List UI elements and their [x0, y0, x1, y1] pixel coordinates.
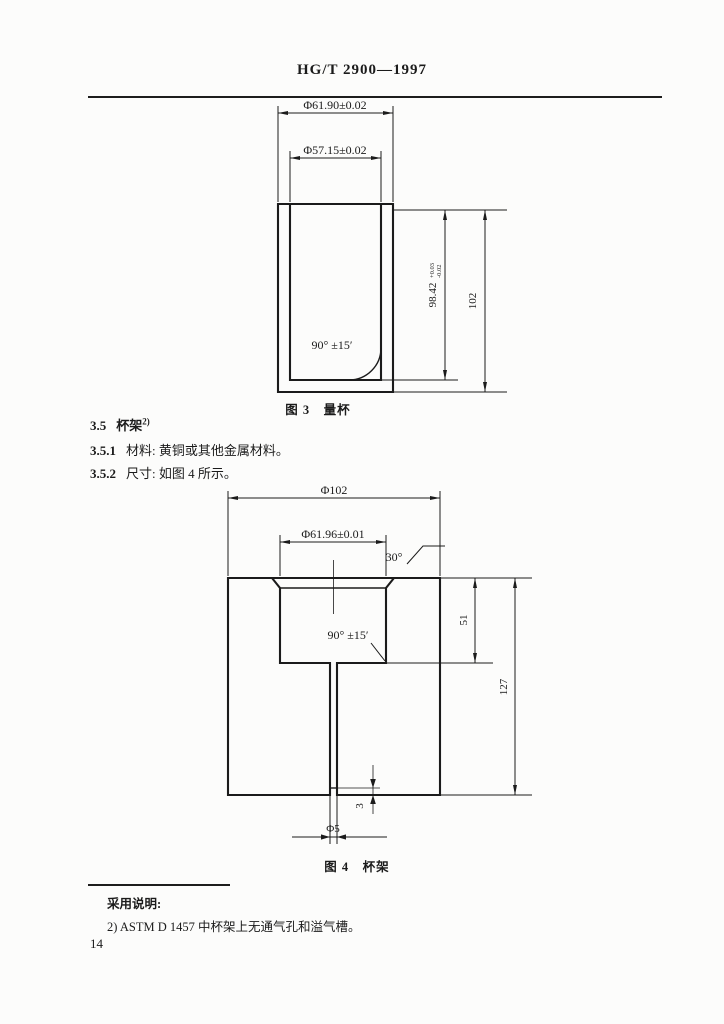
standard-number-header: HG/T 2900—1997	[0, 62, 724, 79]
fig3-extension-lines	[381, 210, 507, 392]
fig3-height-dimension: 102	[467, 210, 485, 392]
fig4-cavity-angle-annotation: 90° ±15′	[327, 628, 385, 661]
fig4-cavity-depth-label: 51	[458, 615, 470, 626]
fig4-chamfer-angle-label: 30°	[386, 550, 403, 564]
fig4-bore-diameter-dimension: Φ61.96±0.01	[280, 527, 386, 576]
fig4-base-gap-arrow-bottom	[370, 795, 376, 804]
fig3-depth-label: 98.42	[427, 283, 439, 308]
fig4-outer-diameter-label: Φ102	[321, 483, 348, 497]
footnote-rule	[88, 884, 230, 886]
figure3-caption: 图 3 量杯	[258, 399, 378, 418]
fig3-angle-arc	[349, 348, 381, 380]
fig3-inner-diameter-dimension: Φ57.15±0.02	[290, 143, 381, 202]
holder-block-left-section	[228, 578, 330, 795]
fig4-hole-diameter-label: Φ5	[326, 823, 340, 835]
fig4-cavity-depth-dimension: 51	[458, 578, 475, 663]
figure4-cup-holder-drawing: Φ102 Φ61.96±0.01 30° 90° ±15′ 51 127	[210, 484, 555, 869]
section-3-5-2-text: 尺寸: 如图 4 所示。	[126, 466, 237, 481]
fig4-extension-lines	[386, 578, 532, 795]
section-3-5-footnote-ref: 2)	[142, 417, 150, 427]
fig4-cavity-angle-label: 90° ±15′	[327, 628, 368, 642]
fig3-angle-label: 90° ±15′	[311, 338, 352, 352]
fig4-chamfer-leader	[407, 546, 445, 564]
fig4-base-gap-label: 3	[354, 803, 366, 809]
section-3-5-1-line: 3.5.1材料: 黄铜或其他金属材料。	[90, 440, 289, 459]
fig3-depth-tolerance-lower: -0.02	[436, 264, 443, 278]
section-3-5-heading: 3.5杯架2)	[90, 415, 150, 434]
fig3-inner-diameter-label: Φ57.15±0.02	[303, 143, 366, 157]
cup-section-hatched	[278, 204, 393, 392]
fig3-bottom-angle-annotation: 90° ±15′	[311, 338, 381, 380]
fig4-base-gap-arrow-top	[370, 779, 376, 788]
fig4-hole-arrow-left	[321, 834, 330, 839]
fig4-chamfer-angle-annotation: 30°	[386, 546, 445, 564]
section-3-5-2-line: 3.5.2尺寸: 如图 4 所示。	[90, 463, 237, 482]
fig4-height-dimension: 127	[498, 578, 515, 795]
section-3-5-title: 杯架	[116, 418, 142, 433]
fig4-base-gap-dimension: 3	[337, 765, 380, 814]
page-number: 14	[90, 936, 103, 952]
section-3-5-1-number: 3.5.1	[90, 443, 116, 458]
footnote-heading: 采用说明:	[107, 893, 161, 912]
section-3-5-number: 3.5	[90, 418, 106, 433]
fig3-depth-dimension: 98.42 +0.03 -0.02	[427, 210, 445, 380]
section-3-5-2-number: 3.5.2	[90, 466, 116, 481]
figure4-caption: 图 4 杯架	[297, 856, 417, 875]
section-3-5-1-text: 材料: 黄铜或其他金属材料。	[126, 443, 289, 458]
holder-block-right-section	[337, 578, 440, 795]
scanned-standard-page: { "header": { "title": "HG/T 2900—1997" …	[0, 0, 724, 1024]
fig3-outer-diameter-label: Φ61.90±0.02	[303, 98, 366, 112]
fig4-height-label: 127	[498, 678, 510, 695]
footnote-item: 2) ASTM D 1457 中杯架上无通气孔和溢气槽。	[107, 916, 360, 935]
fig4-bore-diameter-label: Φ61.96±0.01	[301, 527, 364, 541]
fig3-depth-tolerance-upper: +0.03	[429, 263, 436, 278]
fig4-hole-arrow-right	[337, 834, 346, 839]
fig4-cavity-angle-leader	[371, 643, 385, 661]
fig3-height-label: 102	[467, 293, 479, 310]
figure3-measuring-cup-drawing: Φ61.90±0.02 Φ57.15±0.02 98.42 +0.03 -0.0…	[210, 96, 530, 411]
